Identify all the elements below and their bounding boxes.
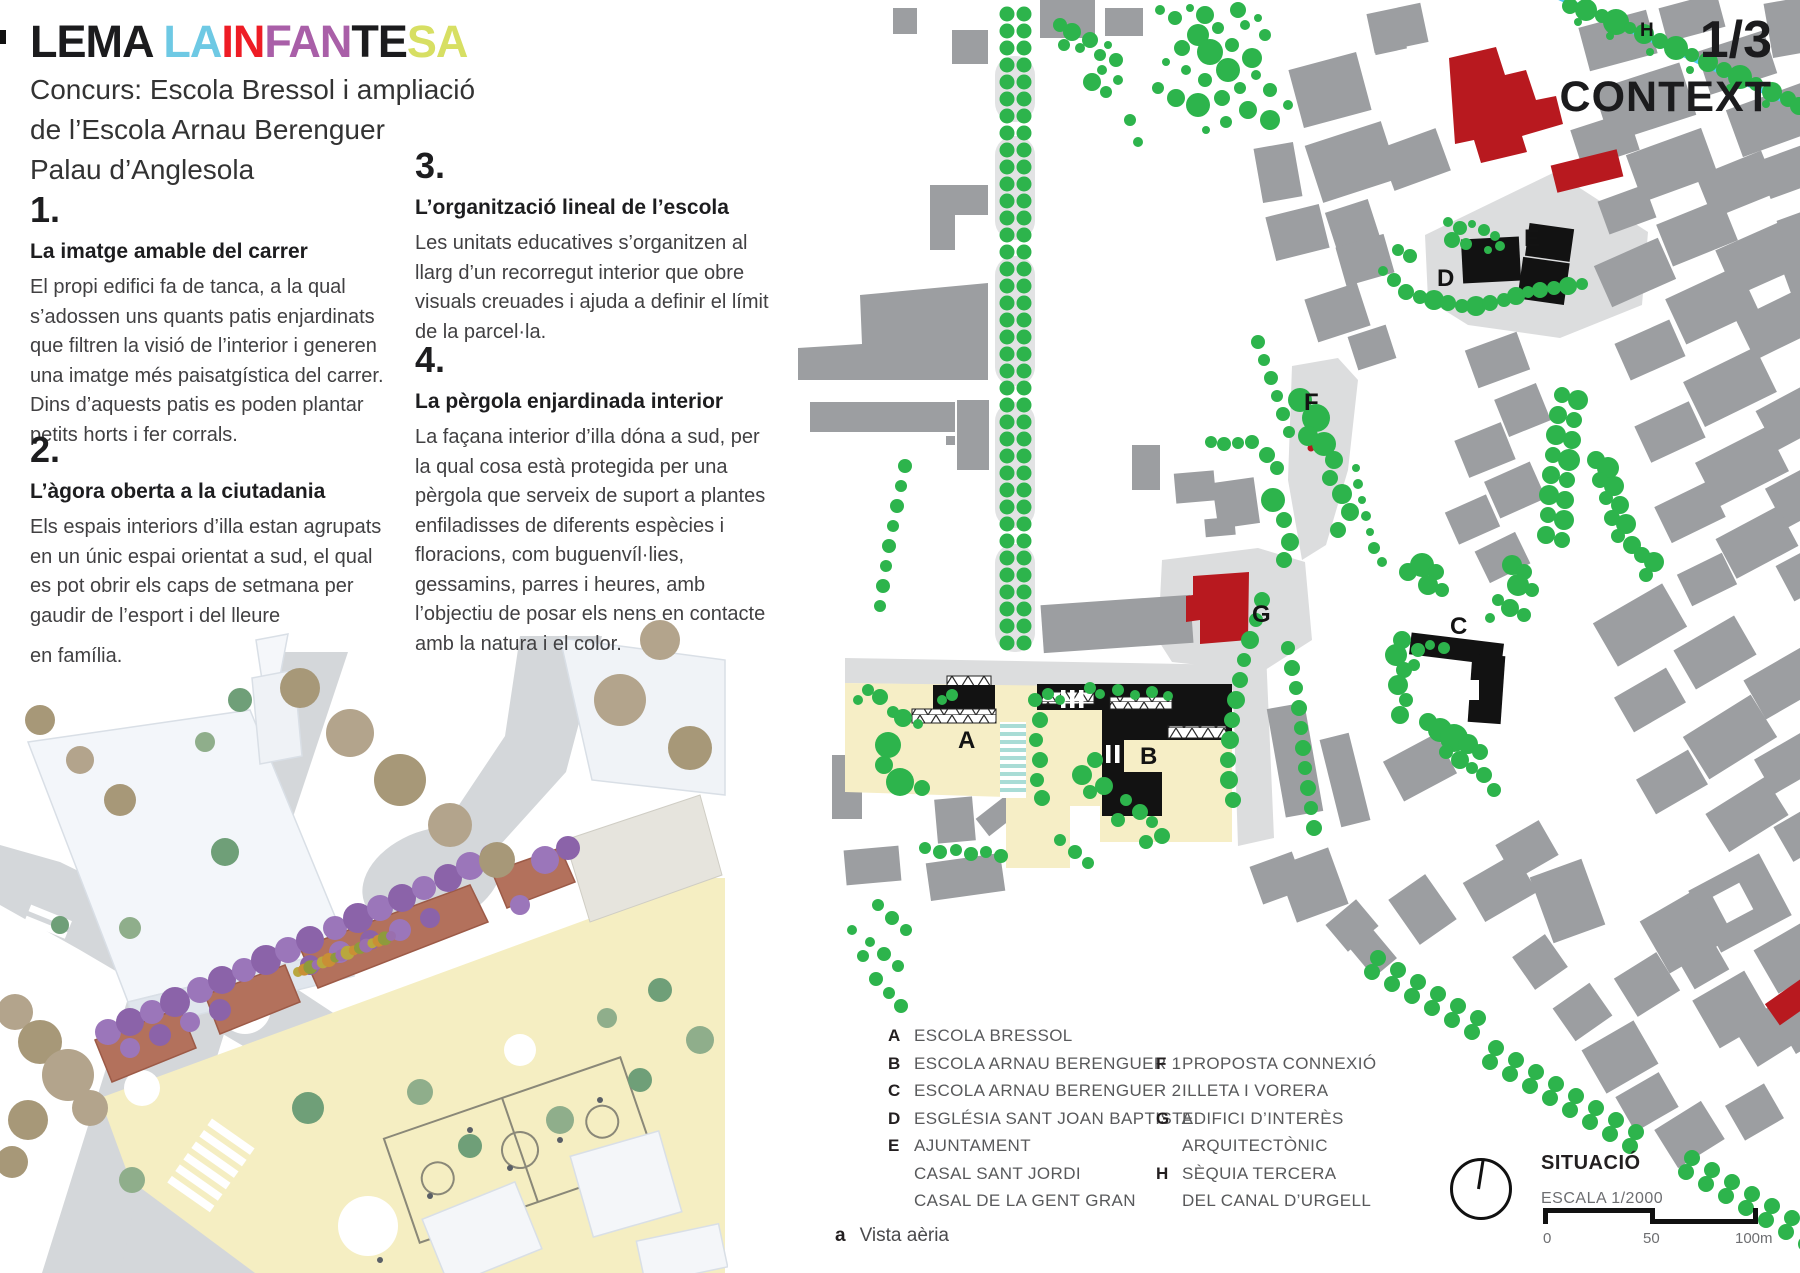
scale-tick-0: 0 [1543,1230,1551,1247]
situacio-title: SITUACIÓ [1541,1152,1641,1175]
legend-letter: E [888,1136,899,1155]
legend-label: CASAL SANT JORDI [914,1164,1081,1183]
title-seg-la: LA [163,16,221,67]
competition-subtitle: Concurs: Escola Bressol i ampliació de l… [30,70,475,190]
map-label-g: G [1252,601,1271,628]
legend-label: ESCOLA BRESSOL [914,1026,1073,1045]
legend-label: PROPOSTA CONNEXIÓ [1182,1054,1376,1073]
title-seg-sa: SA [407,16,468,67]
legend-letter: G [1156,1109,1169,1128]
legend-label: ESGLÉSIA SANT JOAN BAPTISTA [914,1109,1193,1128]
striped-crossing [1000,722,1026,798]
scale-tick-100: 100m [1735,1230,1773,1247]
note-letter: a [835,1225,846,1246]
section-4-heading: La pèrgola enjardinada interior [415,390,807,414]
page-title: CONTEXT [1560,76,1772,119]
legend-label: AJUNTAMENT [914,1136,1031,1155]
section-2-extra: en família. [30,645,422,668]
map-label-c: C [1450,613,1467,640]
legend-label: EDIFICI D’INTERÈS [1182,1109,1344,1128]
title-seg-lema: LEMA [30,16,163,67]
page-number: 1/3 [1700,14,1772,66]
section-3-number: 3. [415,148,807,184]
panel-title: LEMA LAINFANTESA [30,16,467,68]
legend-letter: B [888,1054,900,1073]
map-label-f: F [1304,389,1319,416]
legend-label: SÈQUIA TERCERA [1182,1164,1337,1183]
scale-tick-50: 50 [1643,1230,1660,1247]
map-label-layer: A B C D E F G H [958,20,1654,770]
map-label-e: E [1524,225,1540,252]
section-1-body: El propi edifici fa de tanca, a la qual … [30,273,422,450]
section-1: 1. La imatge amable del carrer El propi … [30,192,422,450]
legend-label: CASAL DE LA GENT GRAN [914,1191,1136,1210]
section-4-body: La façana interior d’illa dóna a sud, pe… [415,423,807,659]
legend-letter: F [1156,1054,1166,1073]
legend-label: DEL CANAL D’URGELL [1182,1191,1371,1210]
legend-note: aVista aèria [835,1222,949,1250]
legend-label: ESCOLA ARNAU BERENGUER 1 [914,1054,1182,1073]
aerial-render [0,620,728,1273]
section-3: 3. L’organització lineal de l’escola Les… [415,148,807,347]
situacio-scale-label: ESCALA 1/2000 [1541,1190,1663,1208]
competition-panel: A B C D E F G H LEMA LAINFANTESA Concurs… [0,0,1800,1273]
legend-label: ARQUITECTÒNIC [1182,1136,1328,1155]
section-1-number: 1. [30,192,422,228]
section-2-number: 2. [30,432,422,468]
section-3-heading: L’organització lineal de l’escola [415,196,807,220]
scale-bar: 0 50 100m [1543,1208,1758,1248]
tree-avenue [995,7,1035,653]
section-2: 2. L’àgora oberta a la ciutadania Els es… [30,432,422,668]
section-4: 4. La pèrgola enjardinada interior La fa… [415,342,807,659]
title-seg-fan: FAN [264,16,351,67]
legend-letter: C [888,1081,900,1100]
legend-letter: A [888,1026,900,1045]
map-label-h: H [1640,20,1654,41]
legend-label: ILLETA I VORERA [1182,1081,1328,1100]
title-seg-te: TE [351,16,407,67]
section-2-heading: L’àgora oberta a la ciutadania [30,480,422,504]
section-3-body: Les unitats educatives s’organitzen al l… [415,229,807,347]
legend-letter: H [1156,1164,1168,1183]
section-1-heading: La imatge amable del carrer [30,240,422,264]
map-label-b: B [1140,743,1157,770]
title-seg-in: IN [221,16,264,67]
map-label-d: D [1437,265,1454,292]
legend-label: ESCOLA ARNAU BERENGUER 2 [914,1081,1182,1100]
section-4-number: 4. [415,342,807,378]
crop-mark [0,30,6,44]
legend-letter: D [888,1109,900,1128]
map-label-a: A [958,727,975,754]
section-2-body: Els espais interiors d’illa estan agrupa… [30,513,422,631]
note-label: Vista aèria [860,1225,949,1246]
